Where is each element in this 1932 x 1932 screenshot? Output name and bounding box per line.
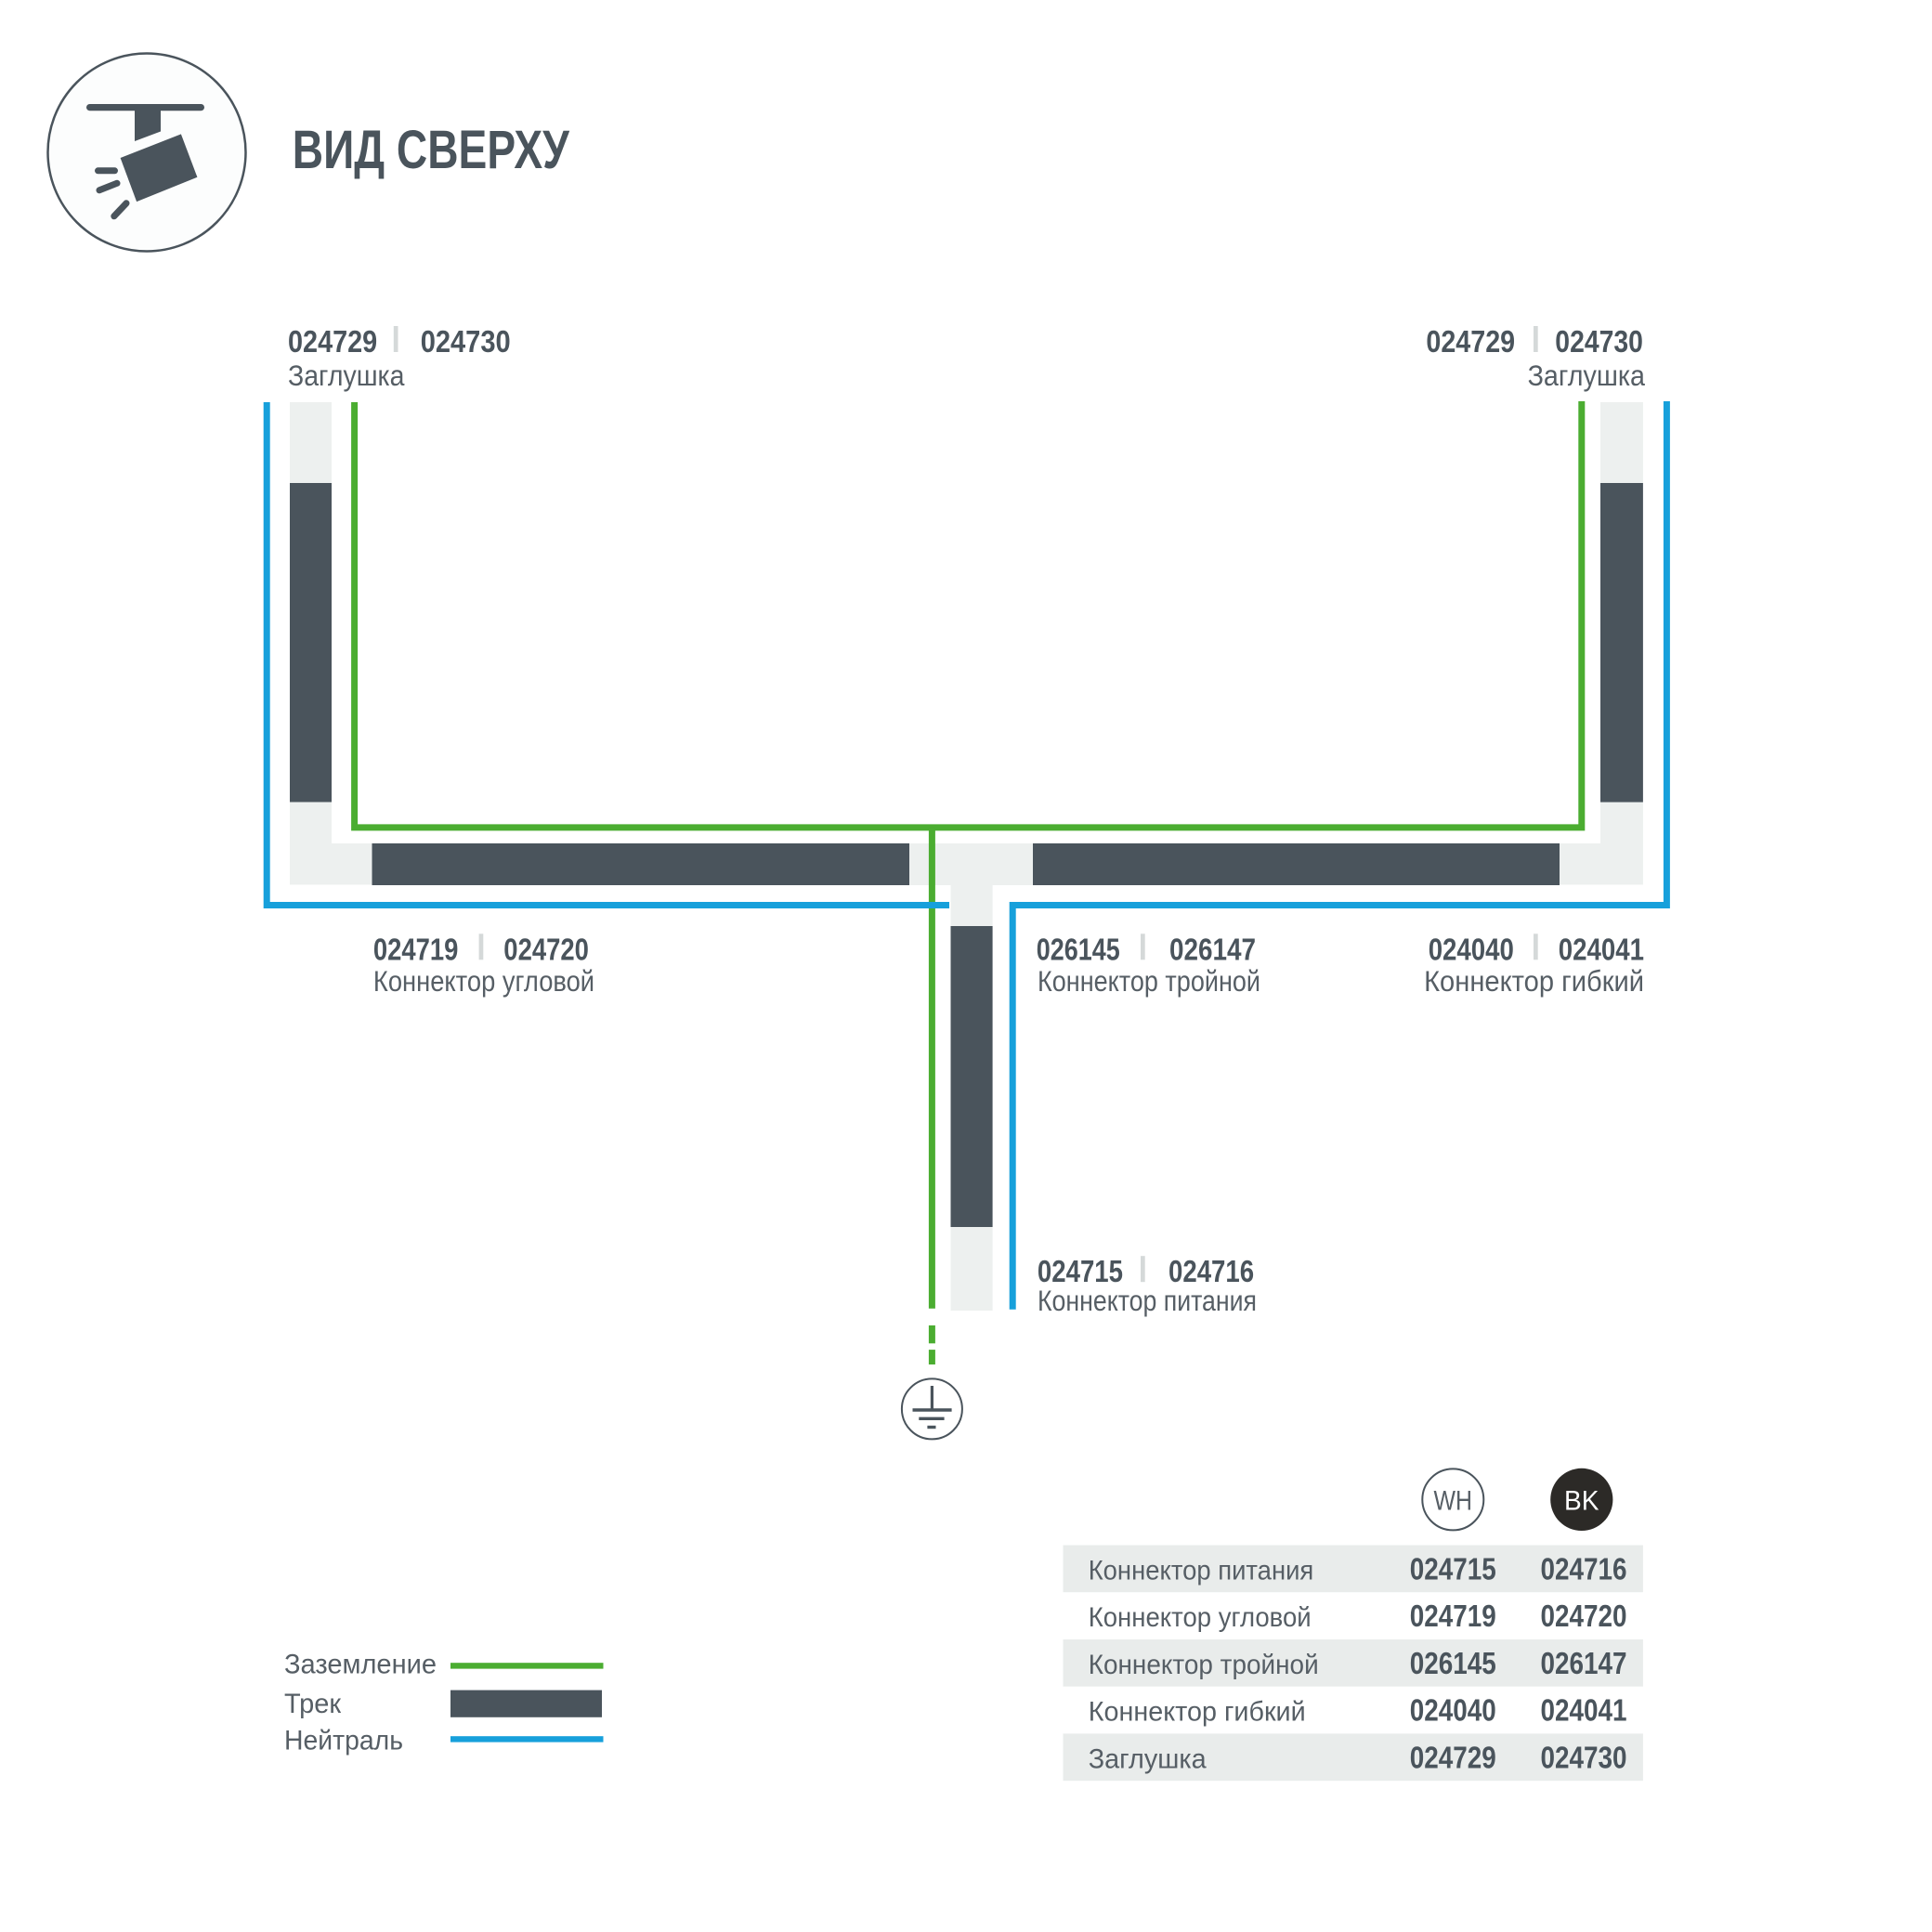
svg-text:024719: 024719 (373, 932, 459, 966)
svg-text:024041: 024041 (1559, 932, 1644, 966)
svg-text:026145: 026145 (1037, 932, 1120, 966)
svg-text:024730: 024730 (1555, 324, 1643, 359)
svg-text:Заглушка: Заглушка (1528, 359, 1646, 392)
svg-text:024730: 024730 (1541, 1740, 1627, 1774)
svg-text:WH: WH (1434, 1485, 1473, 1516)
svg-text:024715: 024715 (1410, 1552, 1496, 1586)
svg-text:024040: 024040 (1410, 1693, 1496, 1728)
svg-text:026147: 026147 (1169, 932, 1256, 966)
svg-text:Коннектор питания: Коннектор питания (1038, 1284, 1257, 1317)
svg-text:Коннектор тройной: Коннектор тройной (1038, 964, 1260, 998)
svg-text:Заглушка: Заглушка (1089, 1743, 1207, 1774)
svg-text:Заземление: Заземление (284, 1650, 437, 1680)
svg-text:024730: 024730 (421, 324, 511, 359)
svg-text:026145: 026145 (1410, 1646, 1496, 1680)
svg-text:024729: 024729 (1426, 324, 1515, 359)
svg-text:Коннектор питания: Коннектор питания (1089, 1556, 1314, 1586)
svg-text:BK: BK (1564, 1485, 1599, 1516)
svg-text:026147: 026147 (1541, 1646, 1627, 1680)
svg-text:Коннектор угловой: Коннектор угловой (373, 964, 594, 998)
svg-text:Заглушка: Заглушка (288, 359, 405, 392)
svg-text:024719: 024719 (1410, 1599, 1496, 1633)
svg-text:024729: 024729 (1410, 1740, 1496, 1774)
svg-text:024720: 024720 (1541, 1599, 1627, 1633)
svg-text:Коннектор угловой: Коннектор угловой (1089, 1602, 1312, 1633)
svg-text:024041: 024041 (1541, 1693, 1627, 1728)
svg-text:Коннектор гибкий: Коннектор гибкий (1424, 964, 1644, 998)
svg-text:024716: 024716 (1541, 1552, 1627, 1586)
svg-text:Трек: Трек (284, 1689, 342, 1719)
svg-text:024729: 024729 (288, 324, 377, 359)
svg-text:Нейтраль: Нейтраль (284, 1726, 403, 1756)
svg-text:ВИД СВЕРХУ: ВИД СВЕРХУ (293, 120, 570, 180)
svg-text:Коннектор тройной: Коннектор тройной (1089, 1650, 1319, 1680)
svg-text:024720: 024720 (503, 932, 589, 966)
svg-text:024040: 024040 (1429, 932, 1514, 966)
svg-text:Коннектор гибкий: Коннектор гибкий (1089, 1697, 1306, 1728)
